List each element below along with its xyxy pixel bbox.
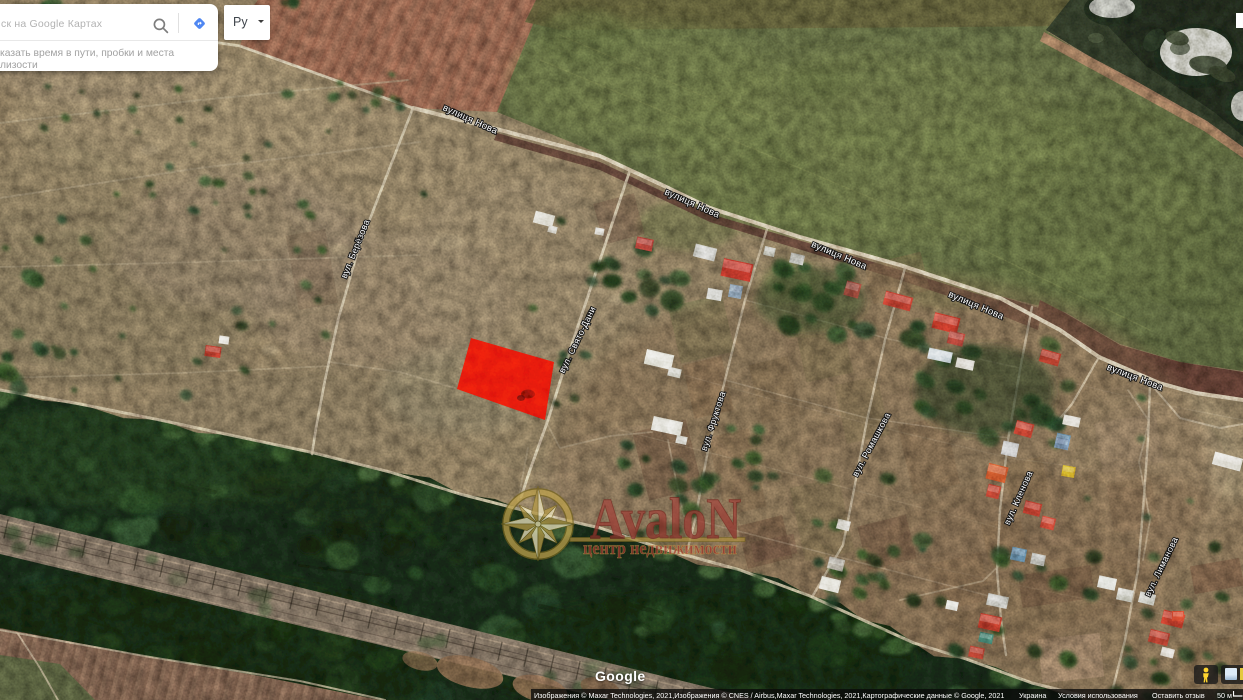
svg-text:центр недвижимости: центр недвижимости bbox=[583, 538, 737, 558]
